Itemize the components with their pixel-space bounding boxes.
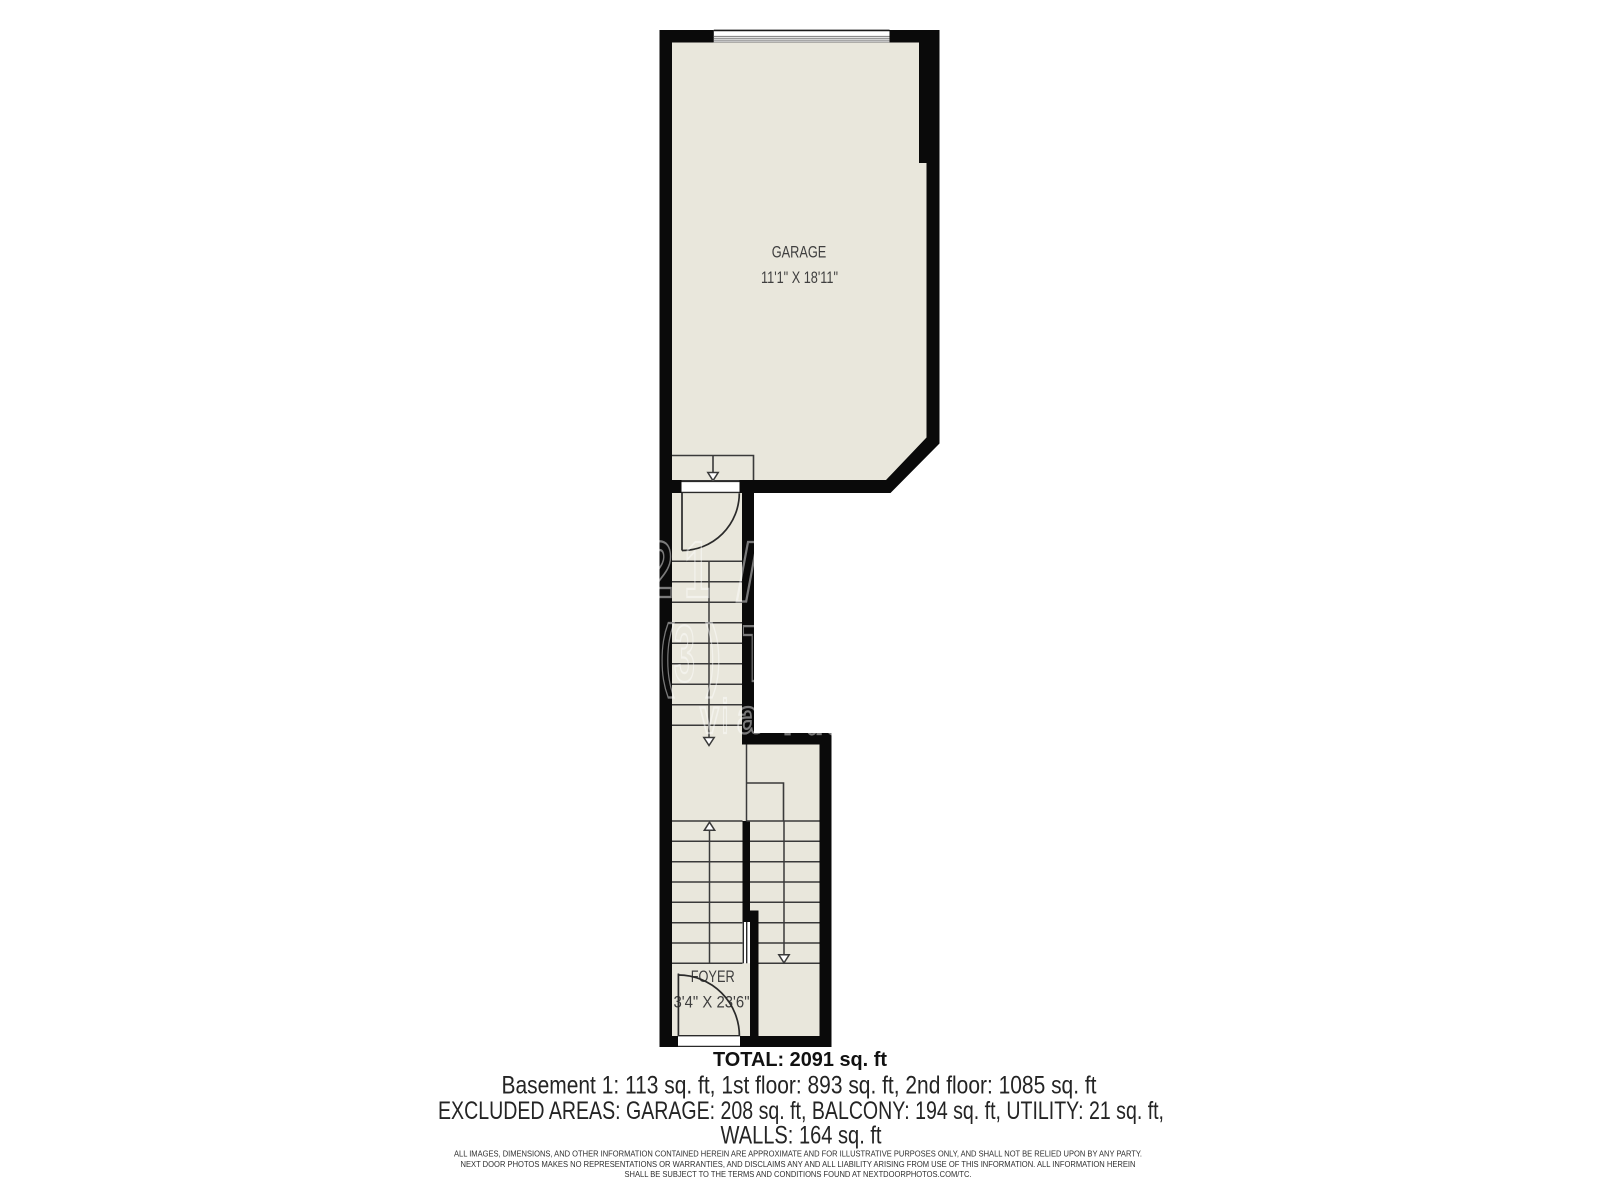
svg-text:SHALL BE SUBJECT TO THE TERMS: SHALL BE SUBJECT TO THE TERMS AND CONDIT… xyxy=(625,1169,972,1179)
svg-text:e: e xyxy=(825,692,841,745)
svg-text:ALL IMAGES, DIMENSIONS, AND OT: ALL IMAGES, DIMENSIONS, AND OTHER INFORM… xyxy=(454,1149,1142,1159)
svg-text:GARAGE: GARAGE xyxy=(772,244,827,262)
svg-text:NEXT DOOR PHOTOS MAKES NO REPR: NEXT DOOR PHOTOS MAKES NO REPRESENTATION… xyxy=(461,1159,1136,1169)
svg-text:a: a xyxy=(737,691,759,744)
svg-text:T: T xyxy=(743,609,767,698)
svg-text:3'4" X 23'6": 3'4" X 23'6" xyxy=(674,993,750,1011)
svg-text:11'1" X 18'11": 11'1" X 18'11" xyxy=(761,269,838,287)
svg-text:v: v xyxy=(700,691,719,744)
svg-text:2: 2 xyxy=(646,525,673,614)
svg-text:(: ( xyxy=(660,609,674,698)
svg-text:FOYER: FOYER xyxy=(691,968,735,986)
svg-text:1: 1 xyxy=(684,525,710,614)
svg-text:Basement 1: 113 sq. ft, 1st fl: Basement 1: 113 sq. ft, 1st floor: 893 s… xyxy=(502,1072,1097,1100)
svg-text:F: F xyxy=(783,692,803,745)
svg-text:3: 3 xyxy=(674,609,695,698)
svg-text:i: i xyxy=(722,691,728,744)
svg-text:): ) xyxy=(706,609,721,698)
svg-text:TOTAL: 2091 sq. ft: TOTAL: 2091 sq. ft xyxy=(713,1049,887,1071)
svg-text:u: u xyxy=(805,692,823,745)
svg-text:WALLS: 164 sq. ft: WALLS: 164 sq. ft xyxy=(721,1122,882,1150)
svg-text:/: / xyxy=(736,528,758,617)
